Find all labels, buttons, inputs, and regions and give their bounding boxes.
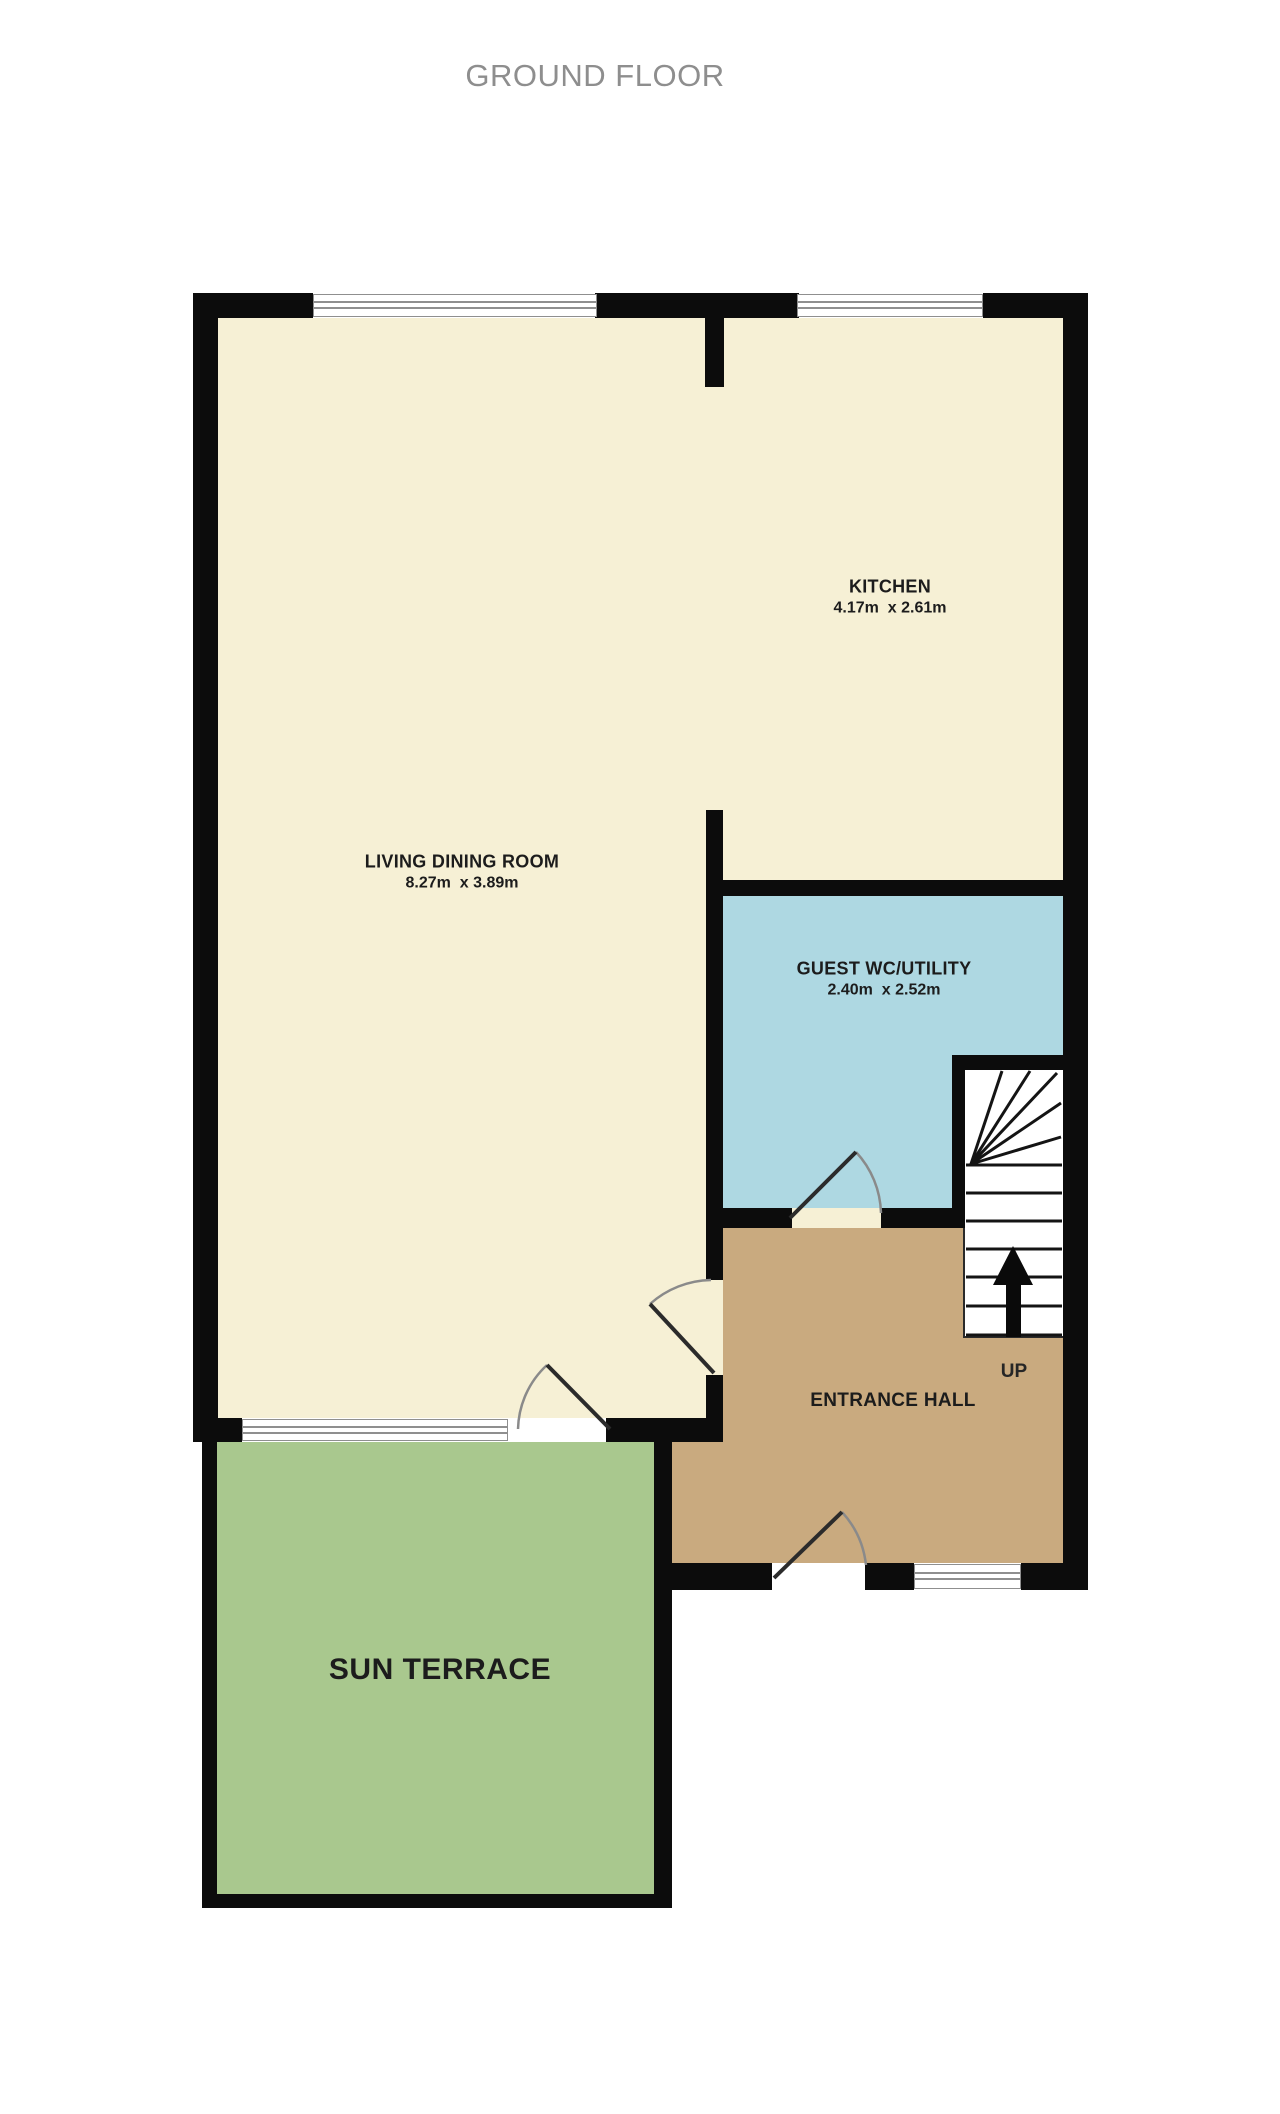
kitchen-dimensions: 4.17m x 2.61m xyxy=(834,598,947,619)
guest-wc-dimensions: 2.40m x 2.52m xyxy=(797,980,972,1001)
floor-plan: GROUND FLOOR xyxy=(0,0,1280,2114)
stairs-up-arrow-icon xyxy=(993,1246,1033,1337)
front-door-arc xyxy=(842,1512,866,1565)
sun-terrace-name: SUN TERRACE xyxy=(329,1659,551,1681)
entrance-hall-label: ENTRANCE HALL xyxy=(810,1390,975,1412)
stair-winder-fan xyxy=(971,1071,1061,1164)
front-door-leaf xyxy=(774,1512,842,1578)
terrace-door-leaf xyxy=(547,1365,610,1429)
guest-wc-name: GUEST WC/UTILITY xyxy=(797,958,972,980)
kitchen-label: KITCHEN 4.17m x 2.61m xyxy=(834,576,947,619)
stairs-up-label: UP xyxy=(1001,1361,1027,1383)
entrance-hall-name: ENTRANCE HALL xyxy=(810,1390,975,1412)
living-door-leaf xyxy=(650,1304,714,1373)
kitchen-name: KITCHEN xyxy=(834,576,947,598)
living-door-arc xyxy=(650,1280,711,1304)
terrace-door-arc xyxy=(518,1365,547,1429)
wc-door-arc xyxy=(856,1152,881,1213)
living-room-dimensions: 8.27m x 3.89m xyxy=(365,873,559,894)
living-dining-room-label: LIVING DINING ROOM 8.27m x 3.89m xyxy=(365,851,559,894)
living-room-name: LIVING DINING ROOM xyxy=(365,851,559,873)
sun-terrace-label: SUN TERRACE xyxy=(329,1659,551,1681)
stairs-and-doors-overlay xyxy=(0,0,1280,2114)
wc-door-leaf xyxy=(790,1152,856,1218)
guest-wc-label: GUEST WC/UTILITY 2.40m x 2.52m xyxy=(797,958,972,1001)
door-leaves xyxy=(547,1152,856,1578)
